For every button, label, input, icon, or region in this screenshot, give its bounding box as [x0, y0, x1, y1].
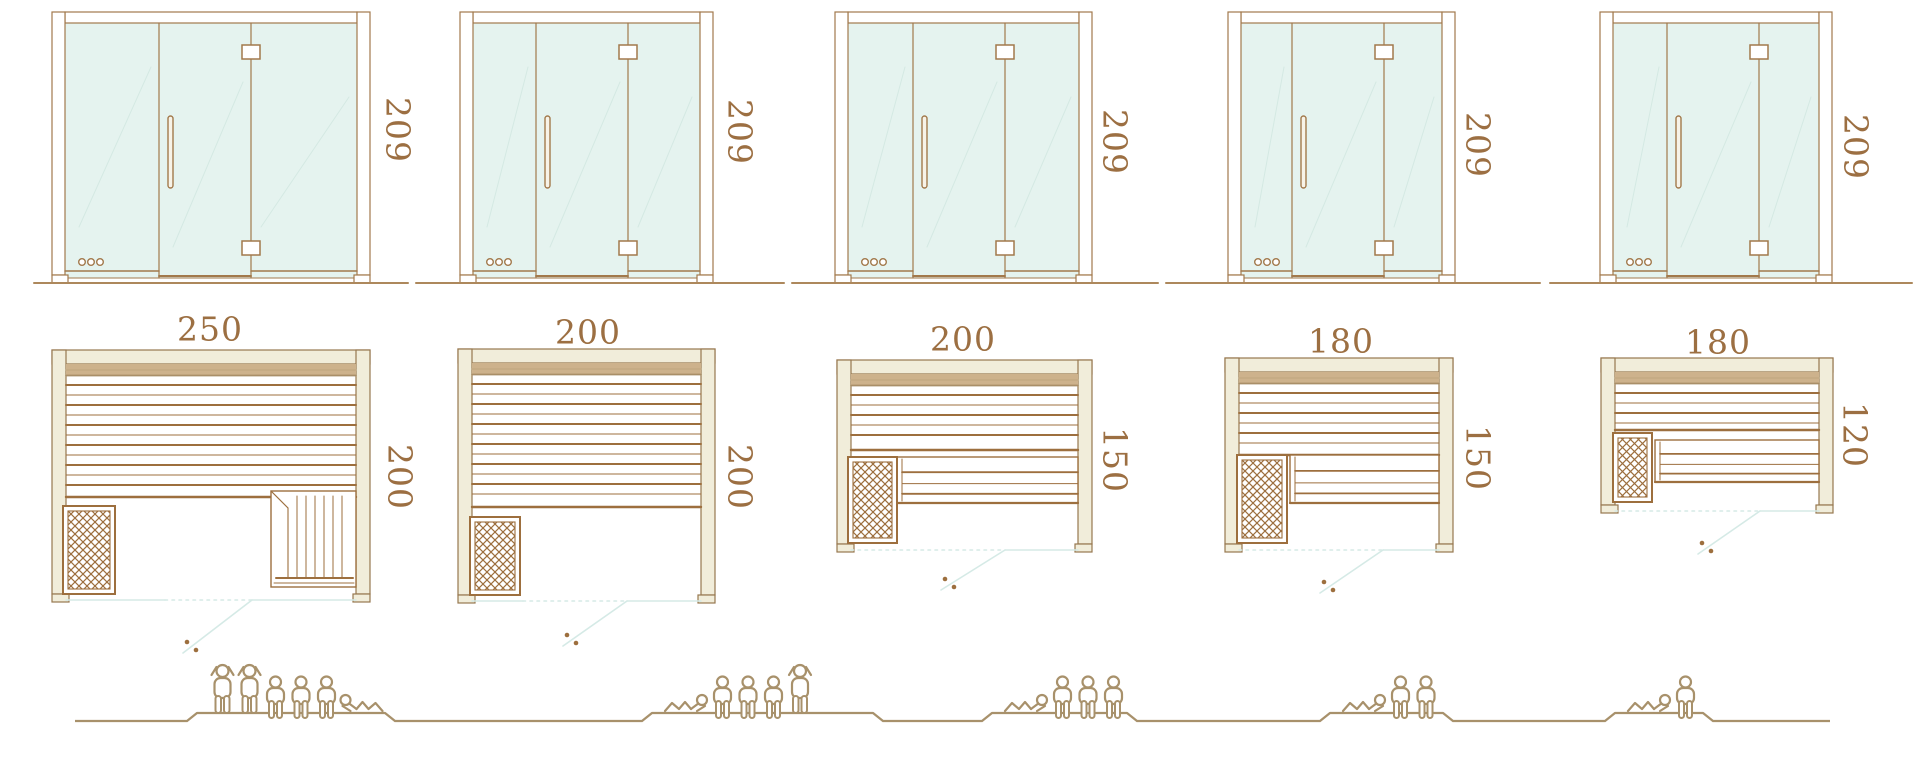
person-lying-icon: [341, 695, 383, 711]
person-sitting-icon: [267, 677, 284, 719]
person-sitting-icon: [765, 677, 782, 719]
person-lying-icon: [1005, 695, 1047, 711]
capacity-group: [665, 665, 811, 718]
capacity-baseline: [75, 713, 1830, 721]
person-lying-icon: [1343, 695, 1385, 711]
capacity-group: [212, 665, 383, 718]
person-sitting-icon: [714, 677, 731, 719]
person-sitting-icon: [740, 677, 757, 719]
person-lying-icon: [1628, 695, 1670, 711]
ground-and-capacity-layer: [0, 0, 1920, 764]
person-standing-icon: [789, 665, 811, 713]
person-sitting-icon: [1080, 677, 1097, 719]
person-sitting-icon: [1054, 677, 1071, 719]
person-sitting-icon: [318, 677, 335, 719]
person-standing-icon: [239, 665, 261, 713]
person-sitting-icon: [1105, 677, 1122, 719]
capacity-group: [1628, 677, 1694, 719]
person-sitting-icon: [1418, 677, 1435, 719]
person-sitting-icon: [1392, 677, 1409, 719]
person-lying-icon: [665, 695, 707, 711]
capacity-group: [1343, 677, 1435, 719]
person-standing-icon: [212, 665, 234, 713]
capacity-group: [1005, 677, 1122, 719]
sauna-size-chart: 209 250 200 209 200 200 209 200 150 209 …: [0, 0, 1920, 764]
person-sitting-icon: [1677, 677, 1694, 719]
person-sitting-icon: [293, 677, 310, 719]
